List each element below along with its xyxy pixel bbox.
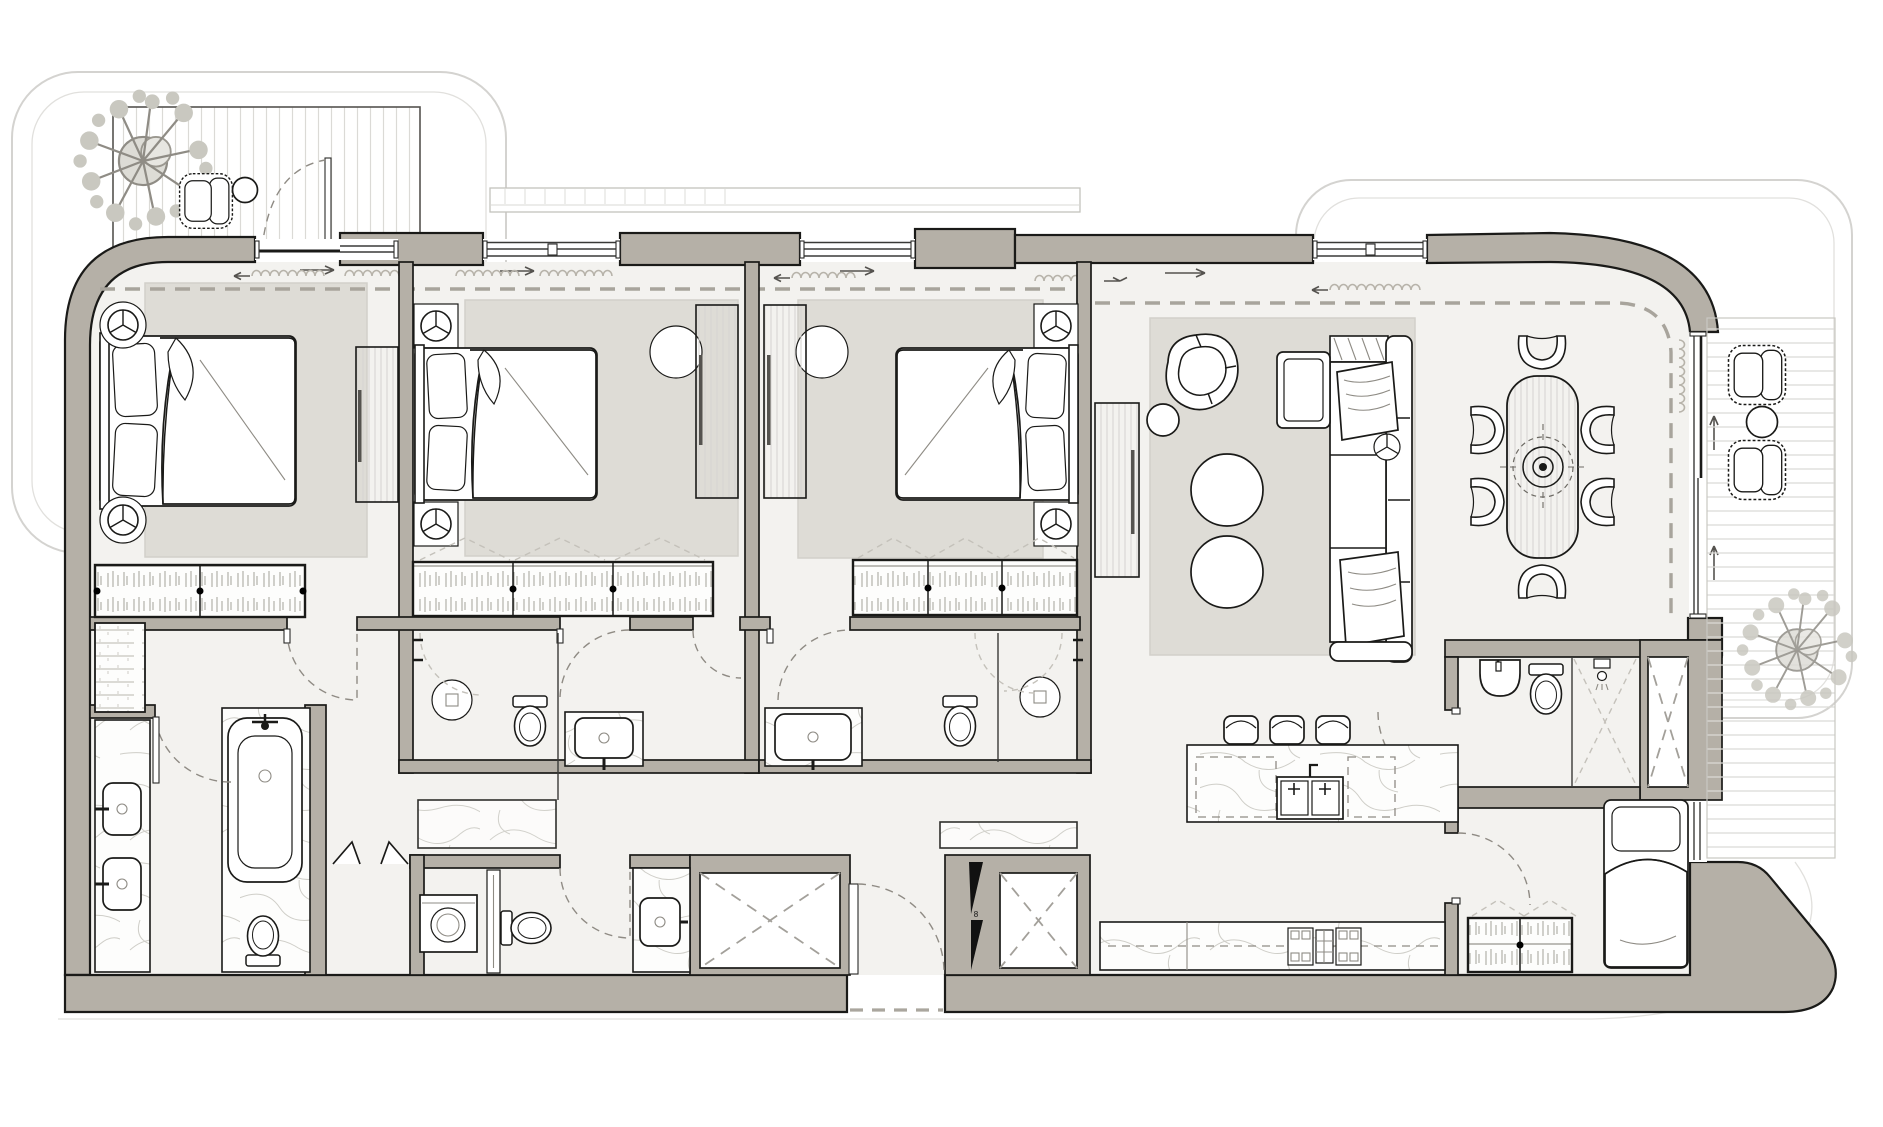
double-vanity-counter <box>95 720 150 972</box>
shaft-powder <box>1648 657 1688 787</box>
nightstand-lamp <box>1034 502 1078 546</box>
riser-label: 8 <box>974 910 979 919</box>
wall-lamp <box>100 497 146 543</box>
desk-panel <box>696 305 738 498</box>
floor-plan-canvas: 8 <box>0 0 1883 1127</box>
desk-chair <box>650 326 702 378</box>
coffee-table <box>1191 536 1263 608</box>
wall-bed2-bed3 <box>745 262 759 773</box>
single-bed <box>1604 800 1688 968</box>
nightstand-lamp <box>1034 304 1078 348</box>
island-counter <box>1187 745 1458 822</box>
round-side-table <box>1747 407 1778 438</box>
tv-sideboard <box>1095 403 1139 577</box>
round-side-table <box>1147 404 1179 436</box>
double-bed <box>100 333 296 509</box>
oven <box>1316 930 1333 963</box>
coffee-table <box>1191 454 1263 526</box>
toilet <box>1529 664 1563 714</box>
floor-plan-drawing: 8 <box>0 0 1883 1127</box>
wicker-armchair <box>1729 346 1786 405</box>
ceiling-light <box>1374 434 1400 460</box>
wall-bed3-living <box>1077 262 1091 773</box>
throw-blanket <box>1340 552 1404 646</box>
toilet <box>943 696 977 746</box>
linen-closet <box>95 623 145 712</box>
wall-basin <box>1480 660 1520 696</box>
bar-stool <box>1224 716 1258 744</box>
bar-stool <box>1316 716 1350 744</box>
throw-blanket <box>1337 362 1398 440</box>
shower-drain <box>432 680 472 720</box>
wall-bed1-bed2 <box>399 262 413 773</box>
wicker-armchair <box>1729 441 1786 500</box>
shower-drain <box>1020 677 1060 717</box>
bathtub <box>228 714 302 882</box>
bar-stool <box>1270 716 1304 744</box>
double-bed <box>415 345 597 503</box>
wardrobe-master <box>94 565 307 617</box>
balcony-right <box>1707 318 1857 858</box>
wall-lamp <box>100 302 146 348</box>
nightstand-lamp <box>414 502 458 546</box>
maids-room <box>1604 800 1688 968</box>
balcony-slider-maid <box>1689 800 1707 862</box>
back-counter <box>1100 922 1445 970</box>
toilet <box>246 916 280 966</box>
toilet <box>513 696 547 746</box>
balcony-left <box>73 90 420 253</box>
dresser-panel <box>356 347 398 502</box>
nightstand-lamp <box>414 304 458 348</box>
pocket-door <box>487 870 500 973</box>
desk-panel <box>764 305 806 498</box>
double-bed <box>896 345 1078 503</box>
round-side-table <box>233 178 258 203</box>
lounge-chair <box>180 174 233 229</box>
toilet <box>501 911 551 945</box>
washing-machine-icon <box>420 895 477 952</box>
canopy-edge <box>490 188 1080 212</box>
